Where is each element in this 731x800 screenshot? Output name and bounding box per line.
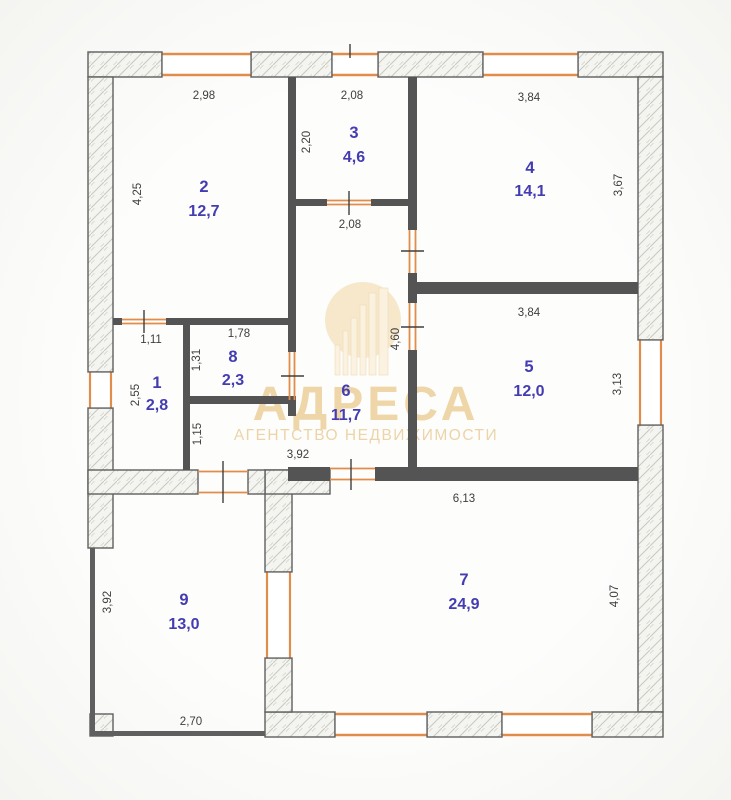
- room-label-5: 5 12,0: [513, 358, 544, 400]
- room-number: 9: [179, 591, 188, 609]
- room-area: 12,7: [188, 203, 219, 220]
- window: [162, 52, 251, 77]
- dimension-label: 4,25: [132, 183, 144, 205]
- dimension-label: 3,67: [613, 174, 625, 196]
- room-number: 5: [524, 358, 533, 376]
- dimension-label: 3,13: [612, 373, 624, 395]
- dimension-label: 4,60: [390, 328, 402, 350]
- window: [483, 52, 578, 77]
- floor-plan-page: АДРЕСА АГЕНТСТВО НЕДВИЖИМОСТИ: [0, 0, 731, 800]
- door-opening: [330, 469, 375, 480]
- room-number: 4: [525, 159, 535, 177]
- room-area: 4,6: [343, 149, 365, 166]
- room-label-7: 7 24,9: [448, 571, 479, 613]
- dimension-label: 3,92: [287, 449, 309, 461]
- room-area: 11,7: [331, 407, 361, 424]
- room-area: 2,3: [222, 372, 244, 389]
- room-area: 12,0: [513, 383, 544, 400]
- floor-plan: АДРЕСА АГЕНТСТВО НЕДВИЖИМОСТИ: [0, 0, 731, 800]
- dimension-label: 2,08: [341, 90, 363, 102]
- window: [265, 572, 292, 658]
- dimension-label: 1,15: [192, 423, 204, 445]
- watermark-title: АДРЕСА: [253, 378, 480, 431]
- window: [638, 340, 663, 425]
- room-number: 8: [228, 348, 237, 366]
- room-label-9: 9 13,0: [168, 591, 199, 633]
- room-label-8: 8 2,3: [222, 348, 244, 389]
- dimension-label: 1,78: [228, 328, 250, 340]
- watermark: АДРЕСА АГЕНТСТВО НЕДВИЖИМОСТИ: [234, 282, 498, 444]
- room-number: 2: [199, 178, 208, 196]
- room-label-2: 2 12,7: [188, 178, 219, 220]
- dimension-label: 2,70: [180, 716, 202, 728]
- dimension-label: 3,92: [102, 591, 114, 613]
- room-label-3: 3 4,6: [343, 124, 365, 166]
- dimension-label: 2,20: [301, 131, 313, 153]
- dimension-label: 4,07: [609, 585, 621, 607]
- dimension-label: 1,11: [140, 334, 162, 346]
- room-area: 13,0: [168, 616, 199, 633]
- dimension-label: 3,84: [518, 92, 541, 104]
- dimension-label: 2,55: [130, 384, 142, 406]
- window: [88, 372, 113, 408]
- room-label-4: 4 14,1: [514, 159, 545, 200]
- window: [335, 712, 427, 737]
- room-area: 24,9: [448, 596, 479, 613]
- dimension-label: 6,13: [453, 493, 475, 505]
- dimension-label: 2,98: [193, 90, 215, 102]
- room-label-1: 1 2,8: [146, 374, 168, 414]
- room-number: 3: [349, 124, 358, 142]
- window: [502, 712, 592, 737]
- room-number: 6: [341, 382, 350, 400]
- watermark-subtitle: АГЕНТСТВО НЕДВИЖИМОСТИ: [234, 427, 498, 444]
- room-number: 7: [459, 571, 468, 589]
- dimension-label: 3,84: [518, 307, 541, 319]
- dimension-label: 2,08: [339, 219, 361, 231]
- dimension-label: 1,31: [191, 349, 203, 371]
- room-area: 2,8: [146, 397, 168, 414]
- room-number: 1: [152, 374, 161, 392]
- window: [332, 52, 378, 77]
- room-area: 14,1: [514, 183, 545, 200]
